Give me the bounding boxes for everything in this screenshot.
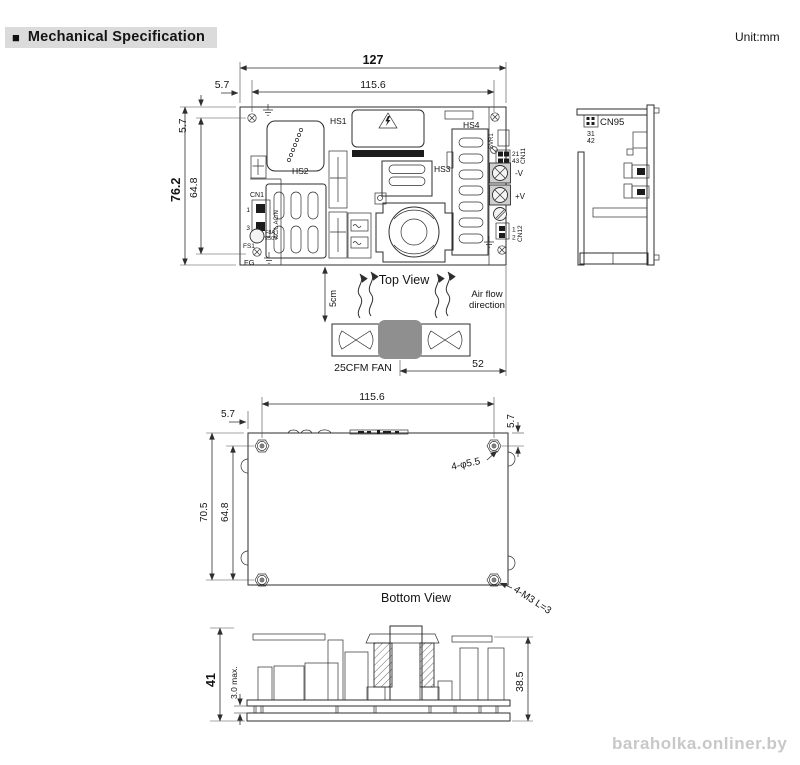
mounting-boss-icon — [255, 574, 269, 586]
cn95-pins-top: 31 — [587, 131, 595, 138]
dim-body-height: 38.5 — [514, 671, 526, 692]
hs2-label: HS2 — [292, 166, 309, 176]
capacitor-tall-1 — [329, 151, 347, 208]
fuse-voltage-label: 250V — [265, 236, 278, 242]
dim-total-height: 41 — [204, 673, 218, 687]
hs3-heatsink — [382, 161, 432, 196]
dim-left-offset: 5.7 — [215, 79, 230, 91]
screw-note: 4-M3 L=3 — [511, 584, 553, 617]
svr1-label: SVR1 — [489, 133, 495, 149]
hs1-label: HS1 — [330, 116, 347, 126]
high-voltage-warning-icon — [379, 113, 397, 128]
terminal-v-minus-icon — [490, 163, 511, 183]
hs3-label: HS3 — [434, 164, 451, 174]
top-view: HS1 HS2 — [169, 53, 527, 376]
v-plus-label: +V — [515, 192, 526, 201]
dim-inner-height: 64.8 — [220, 502, 231, 522]
potentiometer-icon — [494, 208, 507, 221]
top-view-dimensions: 127 115.6 5.7 76.2 64.8 5.7 — [169, 53, 506, 265]
dim-inner-height: 64.8 — [188, 177, 200, 198]
terminal-v-plus-icon — [490, 185, 511, 205]
airflow-clearance: 5cm — [328, 290, 338, 307]
fan-blade-icon — [339, 331, 373, 349]
cn11-pins-bottom-label: 43 — [512, 158, 520, 165]
fg-label: FG — [244, 258, 255, 267]
drawing-svg: HS1 HS2 — [0, 0, 800, 765]
cn1-pin3-label: 3 — [246, 225, 250, 232]
front-components-left — [253, 634, 368, 700]
fs1-label: FS1 — [243, 243, 255, 250]
mounting-screw-icon — [498, 246, 506, 254]
mounting-boss-icon — [487, 440, 501, 452]
dim-pin-protrusion: 3.0 max. — [229, 666, 239, 699]
dim-inner-width: 115.6 — [359, 391, 385, 403]
side-terminal — [624, 184, 649, 198]
cn12-pin1-label: 1 — [512, 227, 516, 234]
mounting-screw-icon — [491, 113, 499, 121]
capacitor-small — [251, 156, 266, 178]
side-view: CN95 31 42 — [577, 105, 659, 265]
dim-top-offset: 5.7 — [177, 118, 189, 133]
bottom-view-dimensions: 115.6 5.7 5.7 70.5 64.8 4-φ5.5 4-M3 L=3 — [199, 391, 553, 617]
cn1-label: CN1 — [250, 192, 264, 199]
hole-note: 4-φ5.5 — [450, 456, 481, 473]
fan-blade-icon — [428, 331, 462, 349]
front-view-dimensions: 41 3.0 max. 38.5 — [204, 628, 533, 725]
mounting-boss-icon — [255, 440, 269, 452]
fg-screw-icon — [253, 248, 261, 256]
cn12-pin2-label: 2 — [512, 235, 516, 242]
relay-block — [348, 213, 371, 258]
cn95-pins-bottom: 42 — [587, 138, 595, 145]
mounting-boss-icon — [487, 574, 501, 586]
airflow-label-line1: Air flow — [471, 289, 502, 300]
cn12-connector — [496, 223, 509, 239]
hs1-heatsink — [352, 110, 424, 157]
ground-icon — [263, 104, 273, 115]
bottom-view: 115.6 5.7 5.7 70.5 64.8 4-φ5.5 4-M3 L=3 … — [199, 391, 553, 617]
top-view-caption: Top View — [379, 273, 430, 287]
toroid-inductor — [375, 193, 453, 262]
front-components-right — [438, 636, 504, 700]
airflow-arrow-icon — [369, 272, 372, 316]
cn11-pins-top-label: 21 — [512, 151, 520, 158]
dim-inner-width: 115.6 — [360, 79, 386, 91]
cn12-label: CN12 — [517, 225, 524, 242]
mounting-screw-icon — [248, 114, 256, 122]
fan-dim: 52 — [472, 358, 484, 370]
cn95-connector-icon — [584, 115, 598, 127]
airflow-label-line2: direction — [469, 300, 505, 311]
dim-left-offset: 5.7 — [221, 409, 235, 420]
dim-total-height: 70.5 — [199, 502, 210, 522]
dim-total-width: 127 — [363, 53, 384, 67]
dim-top-offset: 5.7 — [506, 414, 517, 428]
side-terminal — [624, 163, 649, 178]
hs4-label: HS4 — [463, 120, 480, 130]
fan-label: 25CFM FAN — [334, 362, 392, 374]
cn1-pin1-label: 1 — [246, 207, 250, 214]
airflow-arrow-icon — [358, 274, 361, 318]
airflow-arrow-icon — [446, 272, 449, 316]
airflow-arrow-icon — [435, 274, 438, 318]
front-view: 41 3.0 max. 38.5 — [204, 626, 533, 725]
cn11-label: CN11 — [520, 147, 527, 164]
front-transformer — [366, 626, 439, 700]
component-pins — [254, 706, 498, 713]
bottom-view-caption: Bottom View — [381, 591, 452, 605]
watermark: baraholka.onliner.by — [612, 734, 787, 754]
input-transformer — [267, 121, 324, 171]
dim-total-height: 76.2 — [169, 178, 183, 202]
fuse-fs1 — [250, 229, 264, 243]
v-minus-label: -V — [515, 169, 524, 178]
cn95-label: CN95 — [600, 117, 624, 128]
capacitor-tall-2 — [329, 212, 347, 258]
